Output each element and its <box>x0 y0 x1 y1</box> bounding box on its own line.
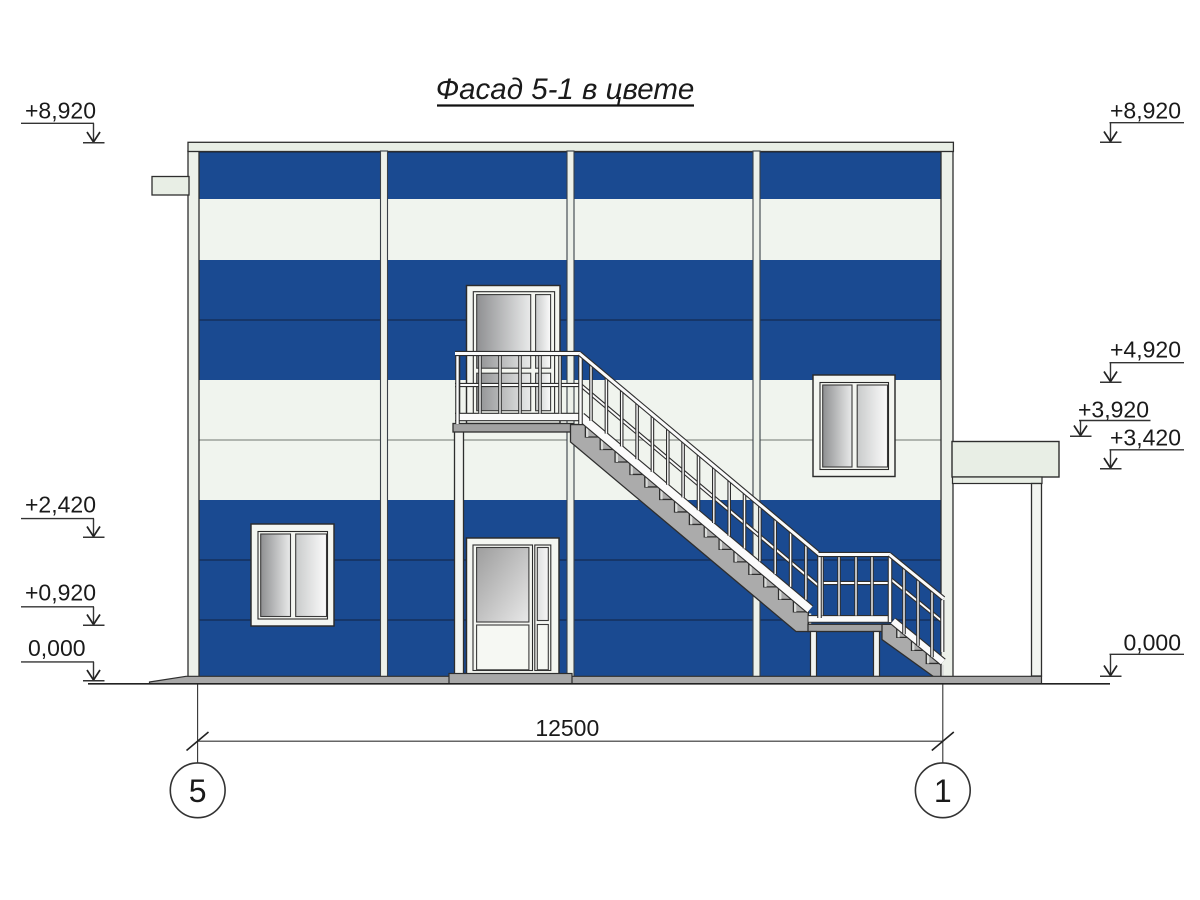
svg-text:12500: 12500 <box>535 715 599 741</box>
svg-text:+3,920: +3,920 <box>1078 397 1149 423</box>
svg-text:+4,920: +4,920 <box>1110 337 1181 363</box>
svg-text:+8,920: +8,920 <box>1110 98 1181 124</box>
svg-text:+2,420: +2,420 <box>25 492 96 518</box>
svg-text:0,000: 0,000 <box>28 635 86 661</box>
svg-text:0,000: 0,000 <box>1123 630 1181 656</box>
svg-text:+3,420: +3,420 <box>1110 425 1181 451</box>
svg-text:+8,920: +8,920 <box>25 98 96 124</box>
svg-text:1: 1 <box>934 773 952 809</box>
svg-text:5: 5 <box>189 773 207 809</box>
svg-text:+0,920: +0,920 <box>25 580 96 606</box>
svg-text:Фасад 5-1 в цвете: Фасад 5-1 в цвете <box>436 73 695 106</box>
